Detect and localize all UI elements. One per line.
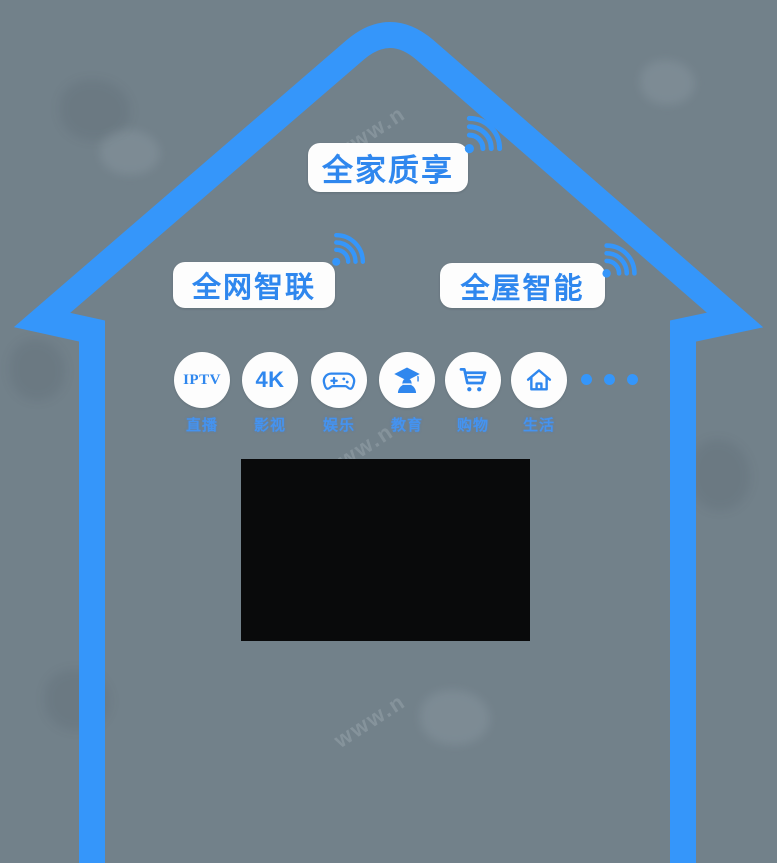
service-education: 教育 xyxy=(379,352,435,435)
banner-label: 全家质享 xyxy=(322,145,454,190)
graduate-icon xyxy=(390,363,424,397)
wifi-icon xyxy=(328,226,372,270)
service-caption: 娱乐 xyxy=(311,414,367,435)
banner-label: 全网智联 xyxy=(192,264,316,306)
cart-icon xyxy=(456,363,490,397)
service-caption: 影视 xyxy=(242,414,298,435)
service-disc xyxy=(379,352,435,408)
service-entertainment: 娱乐 xyxy=(311,352,367,435)
service-life: 生活 xyxy=(511,352,567,435)
wifi-icon xyxy=(598,236,644,282)
service-4k: 4K 影视 xyxy=(242,352,298,435)
service-shopping: 购物 xyxy=(445,352,501,435)
service-disc xyxy=(311,352,367,408)
iptv-badge: IPTV xyxy=(183,372,221,389)
service-caption: 直播 xyxy=(174,414,230,435)
gamepad-icon xyxy=(322,363,356,397)
service-disc: 4K xyxy=(242,352,298,408)
tv-screen xyxy=(241,459,530,641)
service-caption: 教育 xyxy=(379,414,435,435)
service-disc xyxy=(511,352,567,408)
service-disc xyxy=(445,352,501,408)
banner-whole-family: 全家质享 xyxy=(308,143,468,192)
dot xyxy=(604,374,615,385)
4k-badge: 4K xyxy=(255,367,284,393)
dot xyxy=(627,374,638,385)
service-caption: 购物 xyxy=(445,414,501,435)
home-icon xyxy=(522,363,556,397)
smart-home-poster: www.n www.n www.n xyxy=(0,0,777,863)
banner-label: 全屋智能 xyxy=(460,265,584,307)
dot xyxy=(581,374,592,385)
service-disc: IPTV xyxy=(174,352,230,408)
wifi-icon xyxy=(460,108,510,158)
service-caption: 生活 xyxy=(511,414,567,435)
more-services-dots xyxy=(581,374,638,385)
banner-network: 全网智联 xyxy=(173,262,335,308)
service-iptv: IPTV 直播 xyxy=(174,352,230,435)
banner-smart-home: 全屋智能 xyxy=(440,263,605,308)
